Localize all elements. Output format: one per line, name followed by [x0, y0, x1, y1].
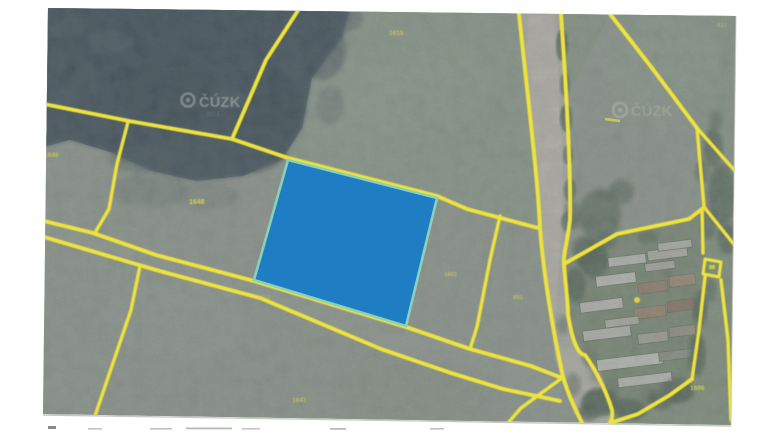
- svg-text:1615: 1615: [389, 30, 404, 37]
- svg-text:1612: 1612: [257, 295, 271, 301]
- svg-text:1606: 1606: [690, 385, 705, 392]
- svg-text:817: 817: [717, 23, 728, 29]
- svg-text:2023: 2023: [206, 112, 220, 118]
- svg-text:1601: 1601: [444, 272, 458, 278]
- svg-text:ČÚZK: ČÚZK: [199, 93, 241, 111]
- svg-text:1648: 1648: [189, 199, 205, 206]
- svg-text:1649: 1649: [44, 152, 59, 159]
- svg-text:801: 801: [513, 295, 524, 301]
- svg-text:ČÚZK: ČÚZK: [631, 102, 673, 120]
- svg-text:1641: 1641: [292, 397, 307, 404]
